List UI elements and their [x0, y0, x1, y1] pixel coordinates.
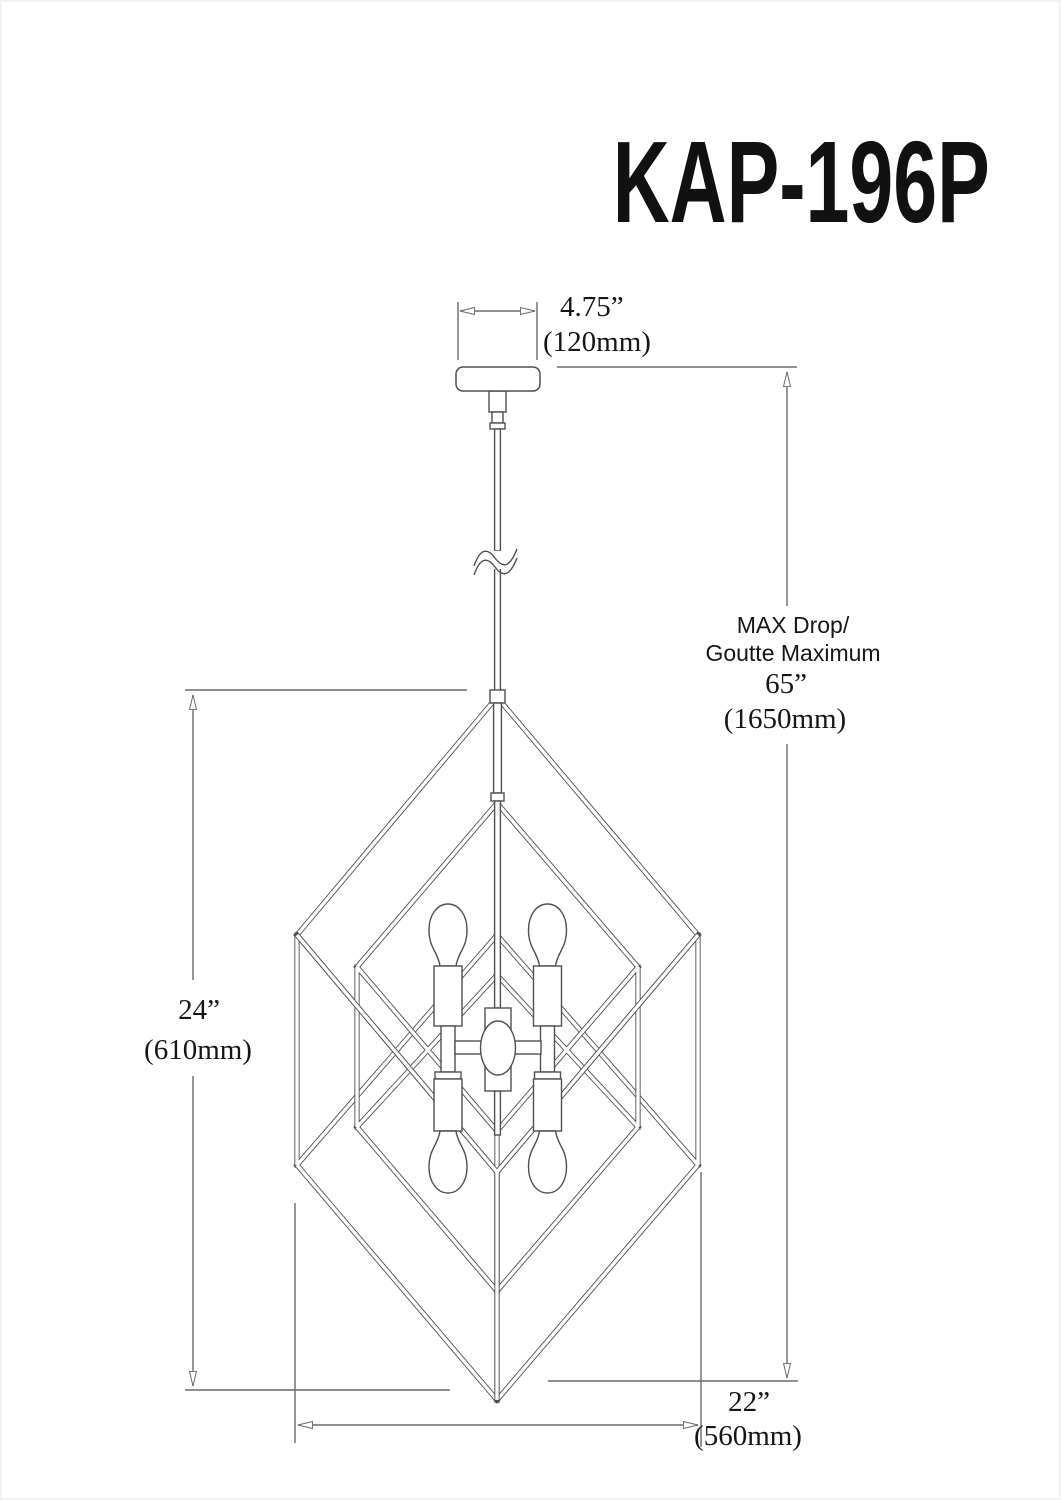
rod-lower	[494, 703, 502, 793]
bulb-socket	[534, 966, 562, 1026]
product-code-title: KAP-196P	[524, 124, 1061, 240]
bulb-glass	[429, 1131, 467, 1193]
center-hub-sphere	[481, 1021, 516, 1075]
canopy-width-dimension	[458, 302, 537, 360]
socket-cap	[535, 1072, 561, 1079]
bulb-lower-right	[529, 1072, 567, 1193]
rod-mid	[495, 567, 501, 691]
canopy-width-mm-label: (120mm)	[543, 326, 651, 358]
rod-collar-2	[491, 793, 504, 801]
rod-taper	[492, 412, 503, 423]
bulb-socket	[534, 1079, 562, 1131]
socket-cap	[435, 1072, 461, 1079]
fixture-width-inches-label: 22”	[728, 1386, 770, 1418]
rod-upper	[495, 429, 501, 551]
bulb-glass	[529, 904, 567, 966]
right-post	[541, 1026, 555, 1072]
left-post	[441, 1026, 455, 1072]
canopy-width-inches-label: 4.75”	[560, 291, 624, 323]
ceiling-canopy	[456, 367, 540, 391]
spec-sheet-page: KAP-196P 4.75” (120mm) MAX Drop/ Goutte …	[0, 0, 1061, 1500]
rod-inner	[495, 801, 501, 1008]
bulb-upper-left	[429, 904, 467, 1026]
max-drop-inches-label: 65”	[765, 668, 807, 700]
dimension-lines	[185, 302, 798, 1447]
bulb-glass	[429, 904, 467, 966]
bulb-glass	[529, 1131, 567, 1193]
bulb-socket	[434, 966, 462, 1026]
rod-below-hub	[495, 1091, 501, 1135]
bulb-upper-right	[529, 904, 567, 1026]
rod-stem	[489, 391, 506, 412]
bulb-socket	[434, 1079, 462, 1131]
max-drop-label-en: MAX Drop/	[737, 612, 849, 638]
max-drop-label-fr: Goutte Maximum	[705, 640, 880, 666]
product-code-text: KAP-196P	[613, 124, 990, 240]
max-drop-mm-label: (1650mm)	[724, 703, 846, 735]
rod-collar	[490, 423, 505, 429]
fixture-height-mm-label: (610mm)	[144, 1034, 252, 1066]
fixture-width-mm-label: (560mm)	[694, 1420, 802, 1452]
max-drop-dimension	[548, 372, 798, 1381]
fixture-height-inches-label: 24”	[178, 994, 220, 1026]
rod-connector	[490, 690, 505, 703]
